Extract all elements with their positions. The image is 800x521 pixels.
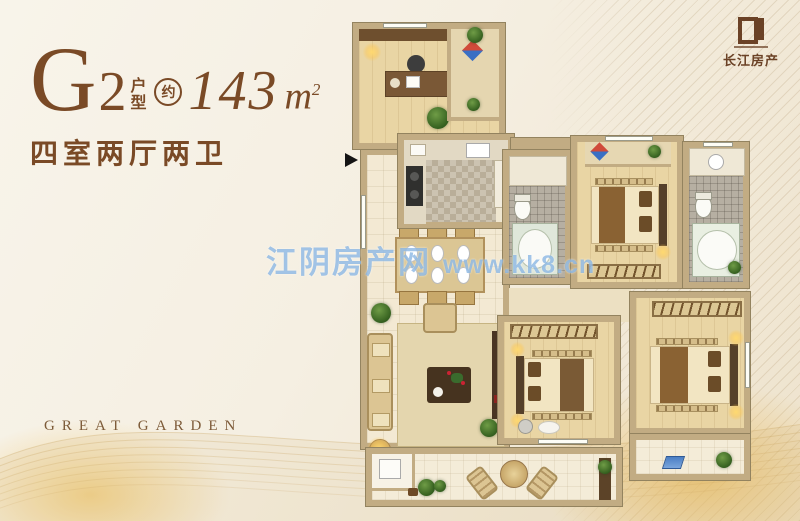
study: [353, 23, 505, 149]
balcony-table: [500, 460, 528, 488]
balcony: [366, 448, 622, 506]
unit-type-char-top: 户: [130, 78, 146, 95]
title-row: G 2 户 型 约 143 m2: [30, 44, 320, 114]
area-value: 143: [188, 68, 278, 114]
basin-icon: [708, 154, 724, 170]
window: [605, 136, 653, 141]
plant-icon: [728, 261, 741, 274]
armchair: [423, 303, 457, 333]
kitchen: [398, 134, 514, 228]
bed: [516, 350, 602, 420]
balcony-2: [630, 434, 750, 480]
sofa: [367, 333, 393, 431]
window: [703, 142, 733, 147]
plant-icon: [371, 303, 391, 323]
bookshelf: [359, 29, 451, 41]
lounge-chair: [525, 465, 559, 501]
storage-room: [372, 454, 415, 491]
flower-pot: [408, 488, 418, 496]
clock-icon: [518, 419, 533, 434]
kite-icon: [590, 142, 608, 160]
bedside-lamp-glow: [728, 330, 744, 346]
desk: [385, 71, 449, 97]
wardrobe: [652, 301, 742, 317]
bedroom-2: [498, 316, 620, 444]
wardrobe: [587, 264, 661, 279]
window: [383, 23, 427, 28]
toilet-icon: [514, 198, 531, 220]
bay-window: [585, 142, 671, 167]
site-watermark: 江阴房产网 www.kk8.cn: [266, 237, 595, 282]
bath-counter: [689, 148, 745, 176]
book-icon: [662, 456, 685, 469]
lamp-glow: [363, 43, 381, 61]
bedside-mat: [538, 421, 560, 434]
watermark-url: www.kk8.cn: [443, 251, 595, 280]
toilet-icon: [695, 196, 712, 218]
plant-icon: [598, 460, 612, 474]
bed: [650, 338, 740, 412]
entry-arrow-icon: [345, 153, 358, 167]
bedside-lamp-glow: [655, 244, 671, 260]
dining-chair: [455, 291, 475, 305]
watermark-site-name: 江阴房产网: [266, 237, 431, 282]
wardrobe: [510, 324, 598, 339]
stove: [406, 166, 423, 206]
sink: [466, 143, 490, 158]
window: [538, 439, 588, 444]
bedside-lamp-glow: [510, 342, 525, 357]
plant-icon: [467, 98, 480, 111]
plant-icon: [418, 479, 435, 496]
plant-icon: [716, 452, 732, 468]
kite-icon: [462, 40, 483, 61]
lounge-chair: [465, 465, 499, 501]
title-block: G 2 户 型 约 143 m2 四室两厅两卫: [30, 44, 320, 172]
bath-counter: [509, 156, 567, 186]
brand-english-name: GREAT GARDEN: [44, 418, 242, 435]
area-superscript: 2: [312, 80, 321, 99]
plant-icon: [427, 107, 449, 129]
area-unit: m2: [284, 73, 320, 114]
plant-icon: [648, 145, 661, 158]
plant-icon: [434, 480, 446, 492]
plant-icon: [480, 419, 498, 437]
coffee-table: [427, 367, 471, 403]
layout-subtitle: 四室两厅两卫: [30, 132, 320, 172]
dining-chair: [399, 291, 419, 305]
approx-badge: 约: [154, 78, 182, 106]
kitchen-floor: [426, 160, 496, 222]
window: [745, 342, 750, 388]
unit-number: 2: [98, 70, 126, 114]
bed: [591, 178, 667, 252]
unit-letter: G: [30, 44, 96, 114]
bathroom-2: [683, 142, 749, 288]
bedside-lamp-glow: [728, 404, 744, 420]
poster-canvas: G 2 户 型 约 143 m2 四室两厅两卫 GREAT GARDEN 长江房…: [0, 0, 800, 521]
master-bedroom: [630, 292, 750, 434]
unit-type-label: 户 型: [130, 78, 146, 112]
unit-type-char-bottom: 型: [130, 95, 146, 112]
kitchen-counter: [404, 140, 508, 161]
plant-icon: [467, 27, 483, 43]
